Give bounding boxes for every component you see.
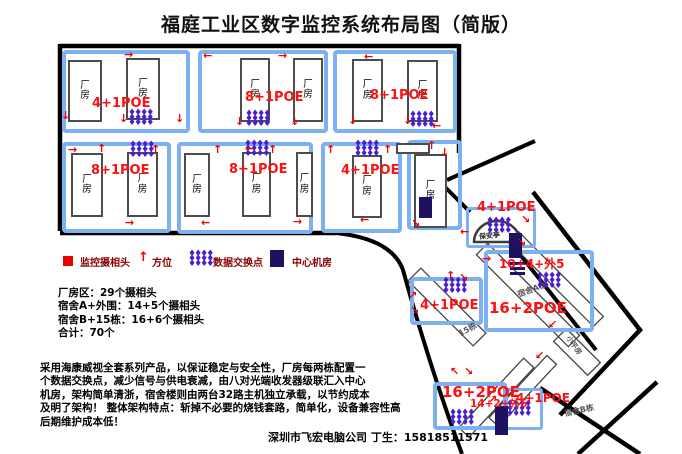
factory-building-label: 厂 房 — [362, 176, 372, 197]
direction-arrow-icon: ↙ — [548, 319, 557, 330]
direction-arrow-icon: ← — [432, 120, 441, 131]
poe-label: 4+1POE — [341, 163, 399, 178]
data-switch-icon: ♦♦♦♦ ♦♦♦♦ ♦♦♦♦ — [188, 252, 212, 267]
direction-arrow-icon: ↘ — [459, 272, 468, 283]
server-room-icon — [270, 250, 284, 267]
description-line: 采用海康威视全套系列产品，以保证稳定与安全性，厂房每两栋配置一 — [40, 362, 366, 375]
legend-switch-label: 数据交换点 — [213, 254, 263, 269]
direction-arrow-icon: ↓ — [175, 113, 184, 124]
direction-arrow-icon: ↘ — [521, 214, 530, 225]
description-line: 机房，架构简单清浙，宿舍楼则由两台32路主机独立承载，以节约成本 — [40, 389, 370, 402]
legend-server-label: 中心机房 — [292, 254, 332, 269]
footer-contact: 深圳市飞宏电脑公司 丁生：15818511571 — [268, 429, 488, 445]
direction-arrow-icon: ↓ — [235, 116, 244, 127]
direction-arrow-icon: ← — [203, 50, 212, 61]
data-switch-icon: ♦♦♦♦ ♦♦♦♦ ♦♦♦♦ — [409, 113, 433, 128]
description-line: 个数据交换点，减少信号与供电衰减，由八对光端收发器级联汇入中心 — [40, 375, 366, 388]
data-switch-icon: ♦♦♦♦ ♦♦♦♦ ♦♦♦♦ — [536, 274, 560, 289]
data-switch-icon: ♦♦♦♦ ♦♦♦♦ ♦♦♦♦ — [354, 142, 378, 157]
poe-label-gate: 4+1POE — [477, 200, 535, 215]
direction-arrow-icon: ← — [364, 51, 373, 62]
direction-arrow-icon: ← — [360, 214, 369, 225]
poe-label-dorm-b-right: 4+1POE — [516, 391, 570, 405]
direction-arrow-icon: ↗ — [408, 290, 417, 301]
direction-arrow-icon: ↖ — [450, 366, 459, 377]
direction-arrow-icon: ↑ — [427, 140, 436, 151]
direction-arrow-icon: ↘ — [517, 237, 526, 248]
factory-building-label: 厂 房 — [80, 81, 90, 102]
server-stack-bar-icon — [510, 272, 525, 275]
poe-label: 8+1POE — [245, 90, 303, 105]
direction-arrow-icon: → — [125, 217, 134, 228]
legend-camera-label: 监控摄相头 — [80, 254, 130, 269]
poe-label-dorm-a: 16+2POE — [489, 299, 567, 317]
direction-arrow-icon: ↘ — [410, 305, 419, 316]
data-switch-icon: ♦♦♦♦ ♦♦♦♦ ♦♦♦♦ — [486, 219, 510, 234]
bottom-road-2 — [578, 382, 657, 454]
direction-arrow-icon: ← — [201, 217, 210, 228]
data-switch-icon: ♦♦♦♦ ♦♦♦♦ ♦♦♦♦ — [449, 411, 473, 426]
poe-label-b15: 4+1POE — [420, 298, 478, 313]
data-switch-icon: ♦♦♦♦ ♦♦♦♦ ♦♦♦♦ — [128, 111, 152, 126]
direction-arrow-icon: → — [124, 49, 133, 60]
layout-diagram: 福庭工业区数字监控系统布局图（简版） 4+1 — [0, 0, 682, 454]
poe-label: 4+1POE — [92, 96, 150, 111]
stats-line: 合计：70个 — [58, 327, 115, 341]
factory-building-label: 厂 房 — [300, 174, 310, 195]
direction-arrow-icon: ↑ — [446, 270, 455, 281]
direction-arrow-icon: ← — [245, 143, 254, 154]
data-switch-icon: ♦♦♦♦ ♦♦♦♦ ♦♦♦♦ — [129, 143, 153, 158]
factory-building-label: 厂 房 — [252, 174, 262, 195]
data-switch-icon: ♦♦♦♦ ♦♦♦♦ ♦♦♦♦ — [245, 112, 269, 127]
poe-label: 8+1POE — [91, 163, 149, 178]
direction-arrow-icon: ↓ — [348, 115, 357, 126]
legend-direction-label: 方位 — [152, 254, 172, 269]
server-room-icon — [419, 197, 432, 218]
direction-arrow-icon: ↙ — [535, 350, 544, 361]
direction-arrow-icon: ↘ — [464, 366, 473, 377]
direction-arrow-icon: ↑ — [383, 144, 392, 155]
poe-label: 8+1POE — [229, 162, 287, 177]
direction-arrow-icon: ↘ — [411, 218, 420, 229]
direction-arrow-icon: ↑ — [213, 144, 222, 155]
poe-label-dorm-a-top: 10+4+外5 — [499, 255, 565, 272]
direction-arrow-icon: → — [482, 253, 491, 264]
camera-icon — [63, 256, 73, 266]
small-annex-building — [396, 143, 430, 154]
stats-line: 宿舍B+15栋：16+6个摄相头 — [58, 314, 204, 328]
direction-arrow-icon: ↑ — [268, 144, 277, 155]
direction-arrow-icon: ← — [460, 226, 469, 237]
description-line: 后期维护成本低！ — [40, 416, 124, 429]
direction-arrow-icon: ↓ — [290, 116, 299, 127]
factory-building-label: 厂 房 — [192, 175, 202, 196]
stats-line: 宿舍A+外围：14+5个摄相头 — [58, 300, 200, 314]
direction-arrow-icon: ↓ — [119, 113, 128, 124]
description-line: 及明了架构！ 整体架构特点：斩掉不必要的烧钱套路，简单化，设备兼容性高 — [40, 402, 401, 415]
factory-building: 厂 房 — [296, 152, 313, 217]
factory-building: 厂 房 — [127, 152, 158, 217]
factory-building-label: 厂 房 — [303, 80, 313, 101]
factory-building: 厂 房 — [184, 153, 210, 217]
direction-arrow-icon: → — [278, 50, 287, 61]
direction-arrow-icon: ↑ — [326, 144, 335, 155]
direction-arrow-icon: ↑ — [97, 143, 106, 154]
direction-arrow-icon: ↑ — [138, 252, 149, 263]
page-title: 福庭工业区数字监控系统布局图（简版） — [0, 10, 682, 37]
direction-arrow-icon: ↓ — [61, 110, 70, 121]
stats-line: 厂房区：29个摄相头 — [58, 287, 157, 301]
poe-label: 8+1POE — [370, 88, 428, 103]
direction-arrow-icon: ↓ — [440, 147, 449, 158]
factory-building: 厂 房 — [68, 60, 102, 122]
direction-arrow-icon: ↑ — [151, 144, 160, 155]
direction-arrow-icon: → — [293, 216, 302, 227]
direction-arrow-icon: ↓ — [403, 115, 412, 126]
direction-arrow-icon: → — [68, 144, 77, 155]
